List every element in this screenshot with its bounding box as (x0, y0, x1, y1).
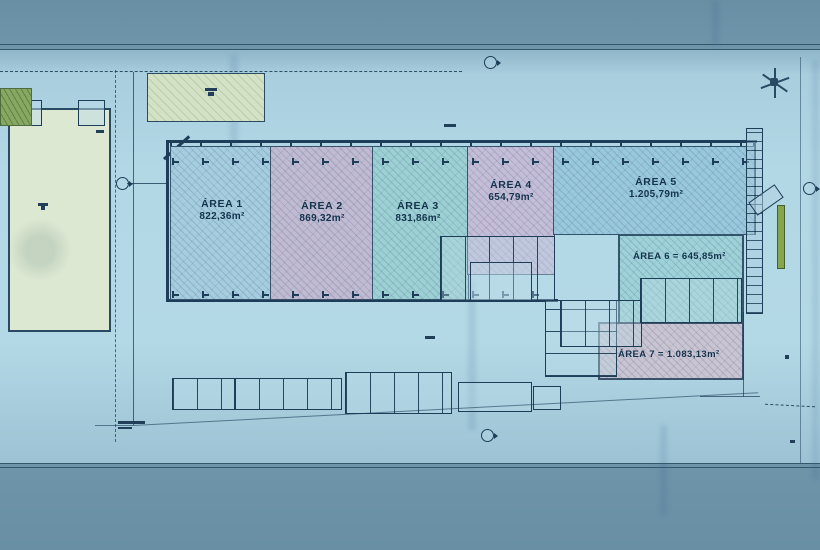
plan-caption-text (118, 427, 132, 429)
area-4-name: ÁREA 4 (467, 179, 555, 192)
plot-symbol (41, 206, 45, 210)
support-rooms (345, 372, 452, 414)
gate-structure (78, 100, 105, 126)
section-marker-icon (484, 56, 497, 69)
property-boundary-dashed (115, 70, 116, 442)
support-rooms (234, 378, 342, 410)
boundary-line (95, 425, 133, 426)
area-3-name: ÁREA 3 (376, 200, 460, 213)
plan-caption-text (118, 421, 145, 424)
show-through-text (812, 60, 819, 480)
area-4-label: ÁREA 4 654,79m² (467, 179, 555, 205)
area-1-name: ÁREA 1 (180, 198, 264, 211)
show-through-text (712, 0, 719, 45)
area-3-label: ÁREA 3 831,86m² (376, 200, 460, 226)
grid-marker-line (127, 183, 167, 184)
drawing-mark (790, 440, 795, 443)
north-arrow-icon (760, 68, 790, 98)
plot-symbol (205, 88, 217, 91)
area-4-size: 654,79m² (467, 192, 555, 205)
area-1-label: ÁREA 1 822,36m² (180, 198, 264, 224)
sheet-edge-line (0, 463, 820, 464)
plot-watermark (8, 218, 72, 282)
blueprint-photo: ÁREA 1 822,36m² ÁREA 2 869,32m² ÁREA 3 8… (0, 0, 820, 550)
area-5-label: ÁREA 5 1.205,79m² (600, 176, 712, 202)
area-5-size: 1.205,79m² (600, 189, 712, 202)
right-wall-columns (746, 128, 763, 314)
interior-rooms (560, 300, 642, 347)
green-strip (777, 205, 785, 269)
sheet-edge-line (0, 44, 820, 45)
boundary-line (743, 312, 744, 397)
grid-marker-icon (803, 182, 816, 195)
area-1-size: 822,36m² (180, 211, 264, 224)
boundary-line (700, 396, 760, 397)
area-2-name: ÁREA 2 (280, 200, 364, 213)
building-wall-left (166, 140, 169, 302)
area-2-label: ÁREA 2 869,32m² (280, 200, 364, 226)
support-rooms (533, 386, 561, 410)
drawing-mark (425, 336, 435, 339)
green-area (0, 88, 32, 126)
section-marker-icon (481, 429, 494, 442)
area-2-size: 869,32m² (280, 213, 364, 226)
interior-rooms (470, 262, 532, 301)
green-area (147, 73, 265, 122)
area-5-name: ÁREA 5 (600, 176, 712, 189)
drawing-mark (96, 130, 104, 133)
drawing-mark (444, 124, 456, 127)
plot-symbol (208, 92, 214, 96)
lot-boundary-line (133, 72, 134, 425)
area-3-size: 831,86m² (376, 213, 460, 226)
lot-boundary-line (800, 57, 801, 463)
sheet-edge-line (0, 49, 820, 50)
column-ticks (172, 158, 752, 165)
show-through-text (660, 425, 667, 515)
drawing-mark (785, 355, 789, 359)
support-rooms (172, 378, 236, 410)
interior-rooms (640, 278, 742, 323)
area-6-label: ÁREA 6 = 645,85m² (633, 251, 726, 262)
property-boundary-dashed (0, 71, 462, 72)
area-7-label: ÁREA 7 = 1.083,13m² (618, 349, 720, 360)
sheet-edge-line (0, 467, 820, 468)
